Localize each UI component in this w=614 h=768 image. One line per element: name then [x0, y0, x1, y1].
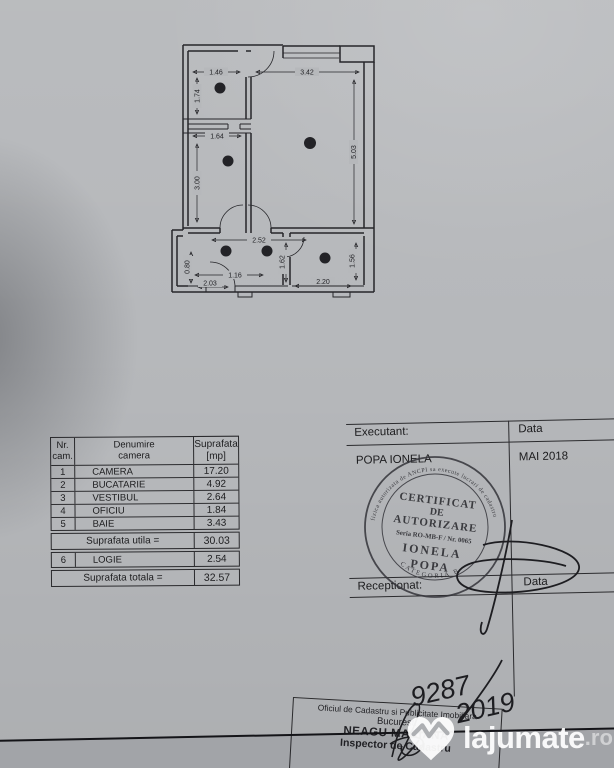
cell-mp: 3.43 — [195, 517, 239, 528]
dim-label: 1.62 — [280, 255, 287, 269]
receptionat-data-label: Data — [523, 576, 548, 589]
room-area-table: Nr.cam. Denumirecamera Suprafata[mp] 1 C… — [50, 436, 240, 587]
table-header-row: Nr.cam. Denumirecamera Suprafata[mp] — [51, 437, 238, 466]
utila-label: Suprafata utila = — [52, 535, 194, 547]
header-nr-cam: Nr.cam. — [51, 438, 75, 465]
executant-data-label: Data — [518, 423, 543, 436]
dim-label: 2.20 — [316, 279, 330, 286]
room-number: 4 — [265, 249, 269, 256]
executant-box-top-border — [346, 418, 614, 425]
room-number: 5 — [323, 256, 327, 263]
table-row: 4 OFICIU 1.84 — [51, 504, 238, 518]
lajumate-watermark: lajumate.ro — [403, 712, 613, 764]
dim-label: 3.00 — [195, 176, 202, 190]
dim-label: 0.80 — [185, 260, 192, 274]
cell-nr: 5 — [52, 518, 76, 530]
utila-value: 30.03 — [194, 533, 239, 548]
room-numbers: 1 2 3 4 5 6 — [215, 83, 331, 264]
cell-name: OFICIU — [75, 504, 194, 517]
executant-label: Executant: — [354, 426, 409, 439]
logie-row: 6 LOGIE 2.54 — [51, 551, 240, 568]
dim-label: 1.16 — [228, 273, 242, 280]
suprafata-utila-row: Suprafata utila = 30.03 — [51, 532, 240, 550]
dim-label: 5.03 — [351, 145, 358, 159]
cell-mp: 4.92 — [194, 478, 238, 489]
cell-nr: 2 — [51, 479, 75, 491]
dim-label: 1.46 — [209, 70, 223, 77]
lajumate-heart-icon — [403, 712, 459, 764]
cell-mp: 1.84 — [194, 504, 238, 515]
header-suprafata: Suprafata[mp] — [194, 437, 238, 464]
room-number: 3 — [224, 249, 228, 256]
dim-label: 1.64 — [210, 134, 224, 141]
table-row: 5 BAIE 3.43 — [52, 517, 239, 530]
table-row: 3 VESTIBUL 2.64 — [51, 491, 238, 505]
dimension-lines — [191, 72, 359, 287]
watermark-brand: lajumate — [463, 720, 585, 756]
cell-name: BAIE — [76, 517, 195, 530]
executant-date: MAI 2018 — [519, 450, 568, 463]
totala-label: Suprafata totala = — [52, 572, 194, 584]
dim-label: 1.56 — [350, 254, 357, 268]
room-number: 1 — [308, 141, 312, 148]
cell-mp: 17.20 — [194, 465, 238, 476]
cell-nr: 4 — [51, 505, 75, 517]
room-number: 2 — [226, 159, 230, 166]
cell-nr: 1 — [51, 466, 75, 478]
cell-name: BUCATARIE — [75, 478, 194, 491]
authorization-stamp: fizica autorizata de ANCPI sa execute lu… — [351, 443, 518, 610]
totala-value: 32.57 — [194, 570, 239, 585]
floor-plan-drawing: 1.46 3.42 1.74 1.64 3.00 5.03 2.52 1.62 … — [170, 40, 390, 310]
dim-label: 2.03 — [203, 281, 217, 288]
cell-mp: 2.54 — [195, 553, 239, 564]
header-denumire: Denumirecamera — [75, 437, 194, 465]
table-row: 2 BUCATARIE 4.92 — [51, 478, 238, 492]
dim-label: 2.52 — [252, 238, 266, 245]
plan-walls — [172, 45, 374, 297]
dim-label: 1.74 — [195, 89, 202, 103]
cell-name: VESTIBUL — [75, 491, 194, 504]
cell-name: CAMERA — [75, 465, 194, 478]
watermark-tld: .ro — [585, 725, 613, 751]
cell-name: LOGIE — [76, 552, 195, 567]
room-number: 6 — [218, 86, 222, 93]
cell-nr: 3 — [51, 492, 75, 504]
area-table-main: Nr.cam. Denumirecamera Suprafata[mp] 1 C… — [50, 436, 240, 531]
cell-mp: 2.64 — [194, 491, 238, 502]
photographed-cadastral-document: 1.46 3.42 1.74 1.64 3.00 5.03 2.52 1.62 … — [0, 0, 614, 768]
cell-nr: 6 — [52, 553, 76, 567]
dim-label: 3.42 — [300, 70, 314, 77]
suprafata-totala-row: Suprafata totala = 32.57 — [51, 569, 240, 587]
table-row: 1 CAMERA 17.20 — [51, 465, 238, 479]
